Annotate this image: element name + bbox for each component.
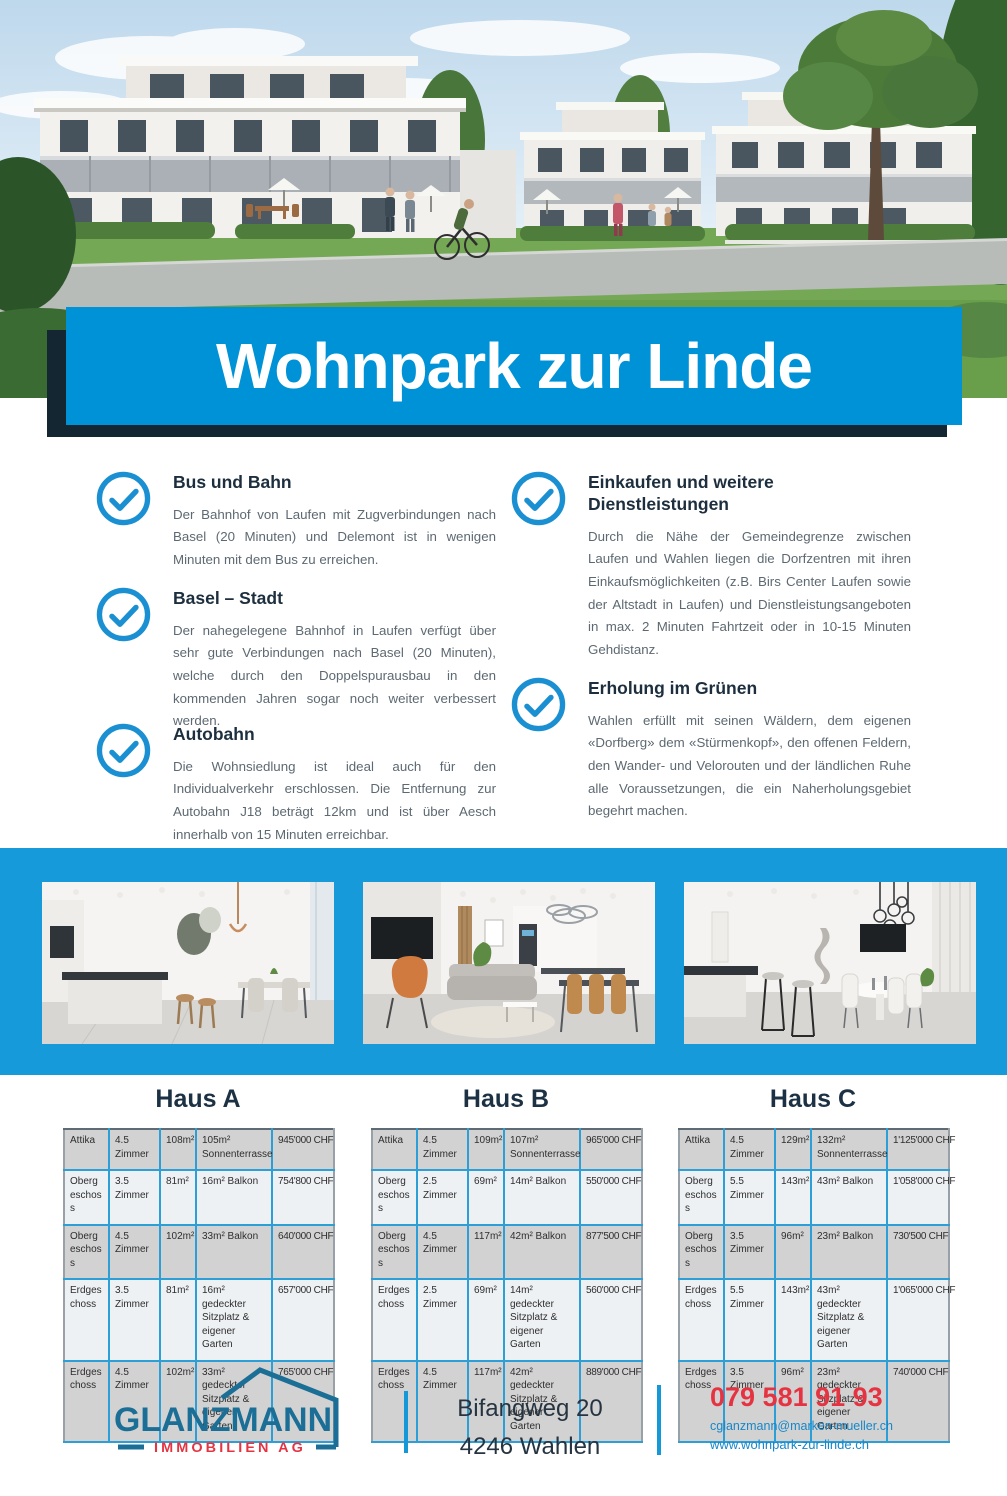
rooms-cell: 4.5 Zimmer [109,1129,160,1170]
check-circle-icon [95,722,152,779]
area-cell: 69m² [468,1279,504,1361]
interior-photo-living-room [363,882,655,1044]
price-cell: 730'500 CHF [887,1225,949,1280]
area-cell: 117m² [468,1225,504,1280]
feature-einkaufen: Einkaufen und weitere Dienstleistungen D… [510,470,915,661]
price-cell: 965'000 CHF [580,1129,642,1170]
apartment-row: Obergeschoss4.5 Zimmer102m²33m² Balkon64… [64,1225,334,1280]
floor-cell: Obergeschoss [64,1225,109,1280]
photo-band [0,848,1007,1075]
apartment-row: Erdgeschoss3.5 Zimmer81m²16m² gedeckter … [64,1279,334,1361]
feature-title: Erholung im Grünen [588,678,911,700]
price-cell: 560'000 CHF [580,1279,642,1361]
apartment-row: Obergeschoss3.5 Zimmer81m²16m² Balkon754… [64,1170,334,1225]
area-cell: 81m² [160,1279,196,1361]
glanzmann-logo: GLANZMANN IMMOBILIEN AG [110,1365,345,1470]
outdoor-cell: 33m² Balkon [196,1225,272,1280]
outdoor-cell: 16m² Balkon [196,1170,272,1225]
outdoor-cell: 105m² Sonnenterrasse [196,1129,272,1170]
outdoor-cell: 16m² gedeckter Sitzplatz & eigener Garte… [196,1279,272,1361]
house-title: Haus B [371,1085,641,1114]
check-circle-icon [510,470,567,527]
floor-cell: Obergeschoss [679,1225,724,1280]
check-circle-icon [95,586,152,643]
rooms-cell: 3.5 Zimmer [109,1170,160,1225]
house-title: Haus C [678,1085,948,1114]
apartment-row: Erdgeschoss2.5 Zimmer69m²14m² gedeckter … [372,1279,642,1361]
apartment-row: Obergeschoss4.5 Zimmer117m²42m² Balkon87… [372,1225,642,1280]
outdoor-cell: 43m² Balkon [811,1170,887,1225]
rooms-cell: 4.5 Zimmer [724,1129,775,1170]
apartment-row: Obergeschoss5.5 Zimmer143m²43m² Balkon1'… [679,1170,949,1225]
area-cell: 143m² [775,1170,811,1225]
feature-body: Der nahegelegene Bahnhof in Laufen verfü… [173,620,496,733]
outdoor-cell: 14m² Balkon [504,1170,580,1225]
floor-cell: Obergeschoss [64,1170,109,1225]
check-circle-icon [95,470,152,527]
email-link[interactable]: cglanzmann@marken-mueller.ch [710,1417,980,1435]
apartment-row: Obergeschoss3.5 Zimmer96m²23m² Balkon730… [679,1225,949,1280]
floor-cell: Erdgeschoss [64,1279,109,1361]
price-cell: 1'065'000 CHF [887,1279,949,1361]
price-cell: 877'500 CHF [580,1225,642,1280]
rooms-cell: 2.5 Zimmer [417,1170,468,1225]
address-block: Bifangweg 20 4246 Wahlen [415,1390,645,1466]
feature-body: Wahlen erfüllt mit seinen Wäldern, dem e… [588,710,911,823]
interior-photo-kitchen [42,882,334,1044]
price-cell: 550'000 CHF [580,1170,642,1225]
rooms-cell: 4.5 Zimmer [417,1129,468,1170]
floor-cell: Attika [372,1129,417,1170]
apartment-row: Attika4.5 Zimmer109m²107m² Sonnenterrass… [372,1129,642,1170]
feature-autobahn: Autobahn Die Wohnsiedlung ist ideal auch… [95,722,500,846]
phone-number: 079 581 91 93 [710,1382,980,1412]
feature-body: Die Wohnsiedlung ist ideal auch für den … [173,756,496,846]
floor-cell: Attika [679,1129,724,1170]
price-cell: 754'800 CHF [272,1170,334,1225]
apartment-row: Erdgeschoss5.5 Zimmer143m²43m² gedeckter… [679,1279,949,1361]
contact-block: 079 581 91 93 cglanzmann@marken-mueller.… [710,1382,980,1454]
rooms-cell: 5.5 Zimmer [724,1279,775,1361]
logo-subtitle-text: IMMOBILIEN AG [154,1439,306,1455]
house-title: Haus A [63,1085,333,1114]
feature-body: Durch die Nähe der Gemeindegrenze zwisch… [588,526,911,662]
address-city: 4246 Wahlen [415,1428,645,1466]
floor-cell: Attika [64,1129,109,1170]
outdoor-cell: 132m² Sonnenterrasse [811,1129,887,1170]
price-cell: 657'000 CHF [272,1279,334,1361]
floor-cell: Erdgeschoss [372,1361,417,1443]
area-cell: 102m² [160,1225,196,1280]
flyer-page: Wohnpark zur Linde Bus und Bahn Der Bahn… [0,0,1007,1496]
feature-erholung: Erholung im Grünen Wahlen erfüllt mit se… [510,676,915,823]
feature-title: Bus und Bahn [173,472,496,494]
outdoor-cell: 14m² gedeckter Sitzplatz & eigener Garte… [504,1279,580,1361]
feature-bus-und-bahn: Bus und Bahn Der Bahnhof von Laufen mit … [95,470,500,572]
outdoor-cell: 23m² Balkon [811,1225,887,1280]
outdoor-cell: 42m² Balkon [504,1225,580,1280]
floor-cell: Obergeschoss [679,1170,724,1225]
rooms-cell: 2.5 Zimmer [417,1279,468,1361]
interior-photo-dining [684,882,976,1044]
feature-title: Basel – Stadt [173,588,496,610]
apartment-row: Attika4.5 Zimmer129m²132m² Sonnenterrass… [679,1129,949,1170]
feature-body: Der Bahnhof von Laufen mit Zugverbindung… [173,504,496,572]
apartment-row: Obergeschoss2.5 Zimmer69m²14m² Balkon550… [372,1170,642,1225]
area-cell: 96m² [775,1225,811,1280]
price-cell: 640'000 CHF [272,1225,334,1280]
area-cell: 129m² [775,1129,811,1170]
address-street: Bifangweg 20 [415,1390,645,1428]
floor-cell: Erdgeschoss [64,1361,109,1443]
rooms-cell: 4.5 Zimmer [417,1225,468,1280]
check-circle-icon [510,676,567,733]
logo-name-text: GLANZMANN [114,1401,332,1439]
rooms-cell: 3.5 Zimmer [109,1279,160,1361]
area-cell: 109m² [468,1129,504,1170]
rooms-cell: 5.5 Zimmer [724,1170,775,1225]
outdoor-cell: 43m² gedeckter Sitzplatz & eigener Garte… [811,1279,887,1361]
area-cell: 108m² [160,1129,196,1170]
price-cell: 1'058'000 CHF [887,1170,949,1225]
area-cell: 81m² [160,1170,196,1225]
area-cell: 69m² [468,1170,504,1225]
feature-title: Einkaufen und weitere Dienstleistungen [588,472,823,516]
feature-title: Autobahn [173,724,496,746]
rooms-cell: 4.5 Zimmer [109,1225,160,1280]
floor-cell: Erdgeschoss [679,1279,724,1361]
footer-divider [657,1385,661,1455]
floor-cell: Obergeschoss [372,1225,417,1280]
rooms-cell: 3.5 Zimmer [724,1225,775,1280]
apartment-row: Attika4.5 Zimmer108m²105m² Sonnenterrass… [64,1129,334,1170]
area-cell: 143m² [775,1279,811,1361]
title-banner: Wohnpark zur Linde [66,307,962,425]
price-cell: 1'125'000 CHF [887,1129,949,1170]
floor-cell: Erdgeschoss [372,1279,417,1361]
outdoor-cell: 107m² Sonnenterrasse [504,1129,580,1170]
website-link[interactable]: www.wohnpark-zur-linde.ch [710,1435,980,1454]
page-title: Wohnpark zur Linde [216,329,812,403]
feature-basel-stadt: Basel – Stadt Der nahegelegene Bahnhof i… [95,586,500,733]
floor-cell: Obergeschoss [372,1170,417,1225]
price-cell: 945'000 CHF [272,1129,334,1170]
footer-divider [404,1391,408,1453]
